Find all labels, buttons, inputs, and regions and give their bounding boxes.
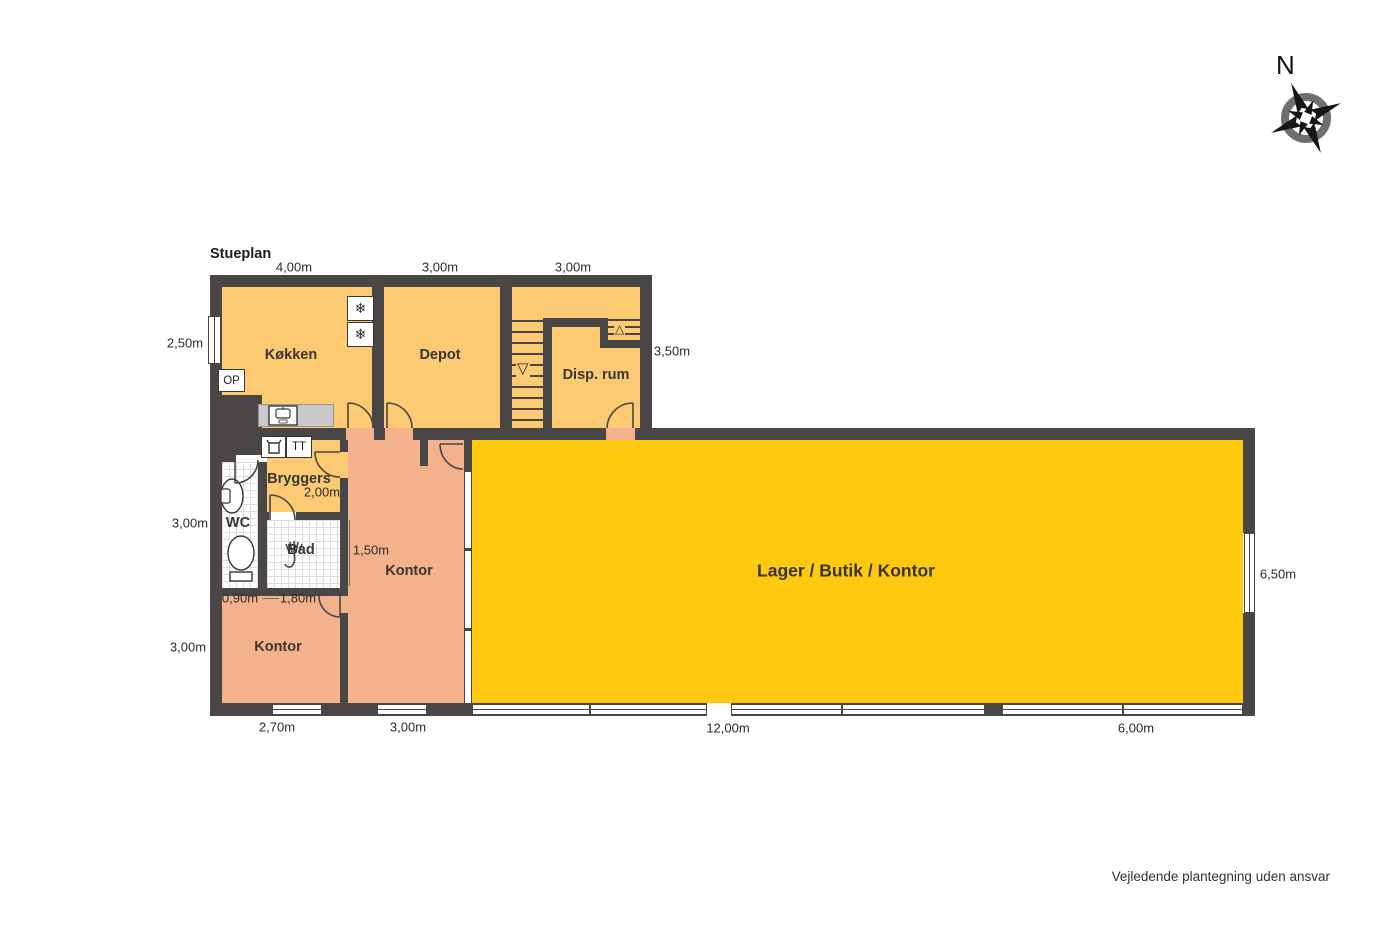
dim-hall-width: 1,50m: [353, 543, 389, 558]
stairs-up-arrow-icon: △: [614, 322, 625, 336]
room-label-disp-rum: Disp. rum: [563, 367, 630, 383]
toilet-icon: [224, 533, 258, 585]
dim-top-1: 3,00m: [422, 260, 458, 275]
window: [1244, 533, 1255, 613]
floor-plan: ▽ △ ❄ ❄ OP TT: [0, 0, 1400, 933]
wall-disp-top: [552, 318, 605, 327]
dim-wc-width: 0,90m: [222, 591, 258, 606]
window-mullion: [841, 705, 843, 714]
dim-line: [262, 598, 279, 599]
dim-bottom-1: 3,00m: [390, 720, 426, 735]
window-mullion: [589, 705, 591, 714]
door-arc: [232, 457, 262, 487]
dim-bottom-2: 12,00m: [706, 721, 749, 736]
wall-segment: [413, 428, 606, 440]
compass-rose-icon: N: [1262, 44, 1346, 156]
room-label-lager: Lager / Butik / Kontor: [757, 561, 935, 582]
op-label-box: OP: [218, 369, 245, 392]
dim-top-2: 3,00m: [555, 260, 591, 275]
plan-title: Stueplan: [210, 246, 271, 262]
dim-bottom-0: 2,70m: [259, 720, 295, 735]
glass-mullion: [464, 548, 472, 551]
wall-right-upper: [640, 287, 652, 440]
kitchen-sink-icon: [268, 405, 298, 426]
window: [731, 704, 985, 715]
entrance-opening: [707, 703, 731, 716]
room-label-kontor-sw: Kontor: [254, 639, 302, 655]
dryer-label: TT: [292, 441, 306, 453]
dryer-box: TT: [286, 436, 312, 458]
op-label: OP: [223, 375, 240, 387]
dim-top-0: 4,00m: [276, 260, 312, 275]
dim-bad-width: 1,80m: [280, 591, 316, 606]
freezer-icon: ❄: [347, 296, 374, 321]
door-arc: [437, 441, 467, 472]
window: [377, 704, 427, 715]
window: [208, 316, 221, 364]
freezer-icon: ❄: [347, 322, 374, 347]
room-label-depot: Depot: [419, 347, 460, 363]
washing-machine-icon: [265, 439, 283, 455]
wall-lager-top: [635, 428, 1255, 440]
door-arc: [604, 400, 636, 431]
dim-bryggers-width: 2,00m: [304, 485, 340, 500]
dim-bottom-3: 6,00m: [1118, 721, 1154, 736]
window-mullion: [1122, 705, 1124, 714]
room-label-bad: Bad: [287, 542, 314, 558]
wall-bryggers-hall-b: [340, 478, 348, 588]
wall-door-stub: [420, 440, 428, 466]
dim-line: [349, 520, 350, 586]
wall-lager-right-b: [1243, 613, 1255, 716]
dim-right-1: 6,50m: [1260, 567, 1296, 582]
room-label-kokken: Køkken: [265, 347, 317, 363]
wall-top: [210, 275, 652, 287]
glass-mullion: [464, 628, 472, 631]
compass-north-label: N: [1276, 50, 1295, 80]
door-arc: [345, 400, 376, 431]
chimney-block: [210, 395, 262, 455]
washing-machine-box: [261, 436, 286, 458]
wall-lager-right-a: [1243, 428, 1255, 533]
wall-kontor-divider: [340, 613, 348, 715]
wall-stairwell: [543, 318, 552, 428]
wall-bad-top-b: [296, 512, 340, 520]
dim-left-0: 2,50m: [167, 336, 203, 351]
dim-left-1: 3,00m: [172, 516, 208, 531]
glass-partition: [464, 472, 472, 703]
dim-right-0: 3,50m: [654, 344, 690, 359]
dim-left-2: 3,00m: [170, 640, 206, 655]
wall-depot-stairs: [500, 287, 512, 428]
room-label-wc: WC: [226, 515, 250, 531]
door-arc: [384, 400, 415, 431]
door-arc: [316, 593, 344, 621]
stairs-down-arrow-icon: ▽: [516, 359, 530, 377]
window: [272, 704, 322, 715]
room-label-kontor-mid: Kontor: [385, 563, 433, 579]
wall-smallstair-bottom: [605, 341, 640, 348]
door-arc: [267, 492, 298, 523]
disclaimer-text: Vejledende plantegning uden ansvar: [1112, 869, 1330, 884]
